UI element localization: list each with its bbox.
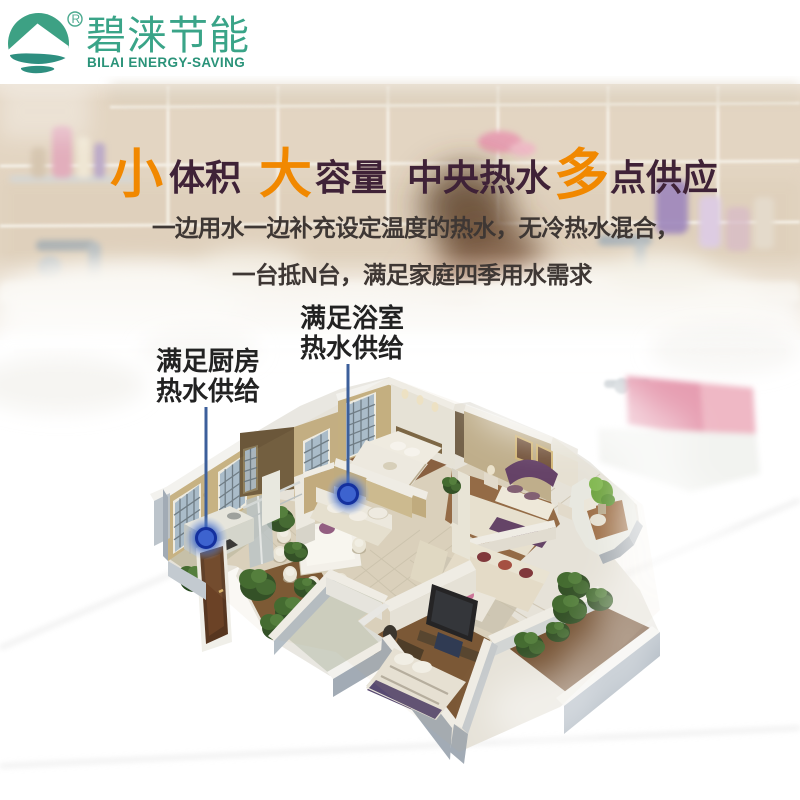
svg-text:R: R bbox=[72, 12, 81, 26]
svg-text:点供应: 点供应 bbox=[610, 157, 718, 198]
svg-text:体积: 体积 bbox=[169, 157, 241, 198]
svg-text:中央热水: 中央热水 bbox=[407, 157, 552, 198]
svg-text:热水供给: 热水供给 bbox=[300, 333, 404, 363]
svg-text:一台抵N台，满足家庭四季用水需求: 一台抵N台，满足家庭四季用水需求 bbox=[232, 261, 593, 288]
svg-text:BILAI ENERGY-SAVING: BILAI ENERGY-SAVING bbox=[87, 55, 245, 70]
svg-text:小: 小 bbox=[110, 145, 163, 204]
svg-text:满足浴室: 满足浴室 bbox=[300, 303, 404, 333]
svg-text:大: 大 bbox=[259, 145, 312, 204]
svg-text:碧涞节能: 碧涞节能 bbox=[86, 14, 250, 58]
svg-text:多: 多 bbox=[554, 144, 609, 206]
svg-text:满足厨房: 满足厨房 bbox=[156, 346, 260, 376]
svg-text:热水供给: 热水供给 bbox=[156, 376, 260, 406]
svg-text:容量: 容量 bbox=[315, 157, 387, 198]
svg-text:一边用水一边补充设定温度的热水，无冷热水混合，: 一边用水一边补充设定温度的热水，无冷热水混合， bbox=[152, 214, 679, 241]
